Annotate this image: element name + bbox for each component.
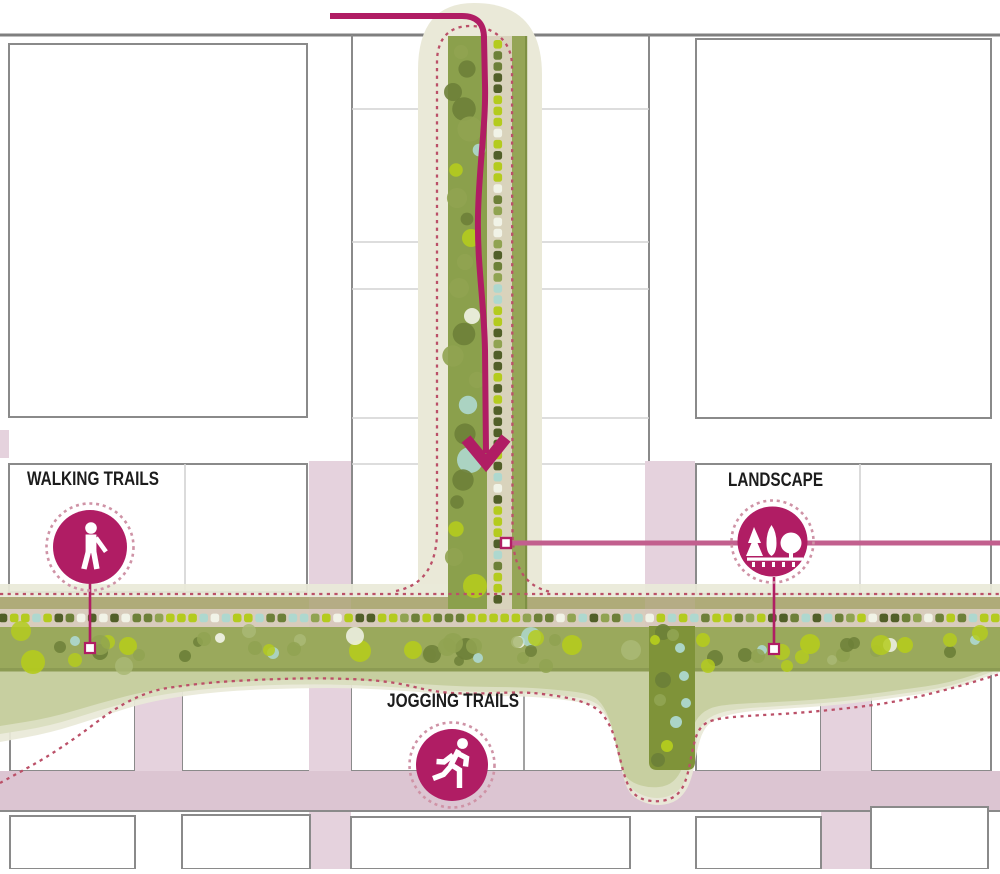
svg-text:JOGGING TRAILS: JOGGING TRAILS xyxy=(387,691,519,712)
svg-text:WALKING TRAILS: WALKING TRAILS xyxy=(27,469,159,490)
svg-text:LANDSCAPE: LANDSCAPE xyxy=(728,470,823,491)
